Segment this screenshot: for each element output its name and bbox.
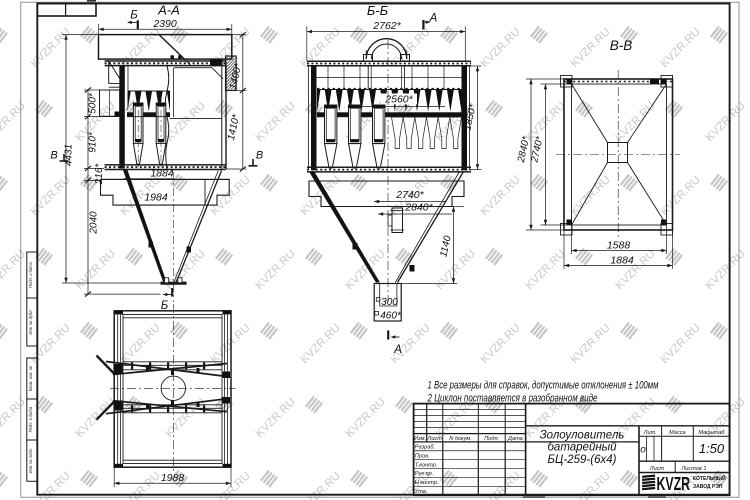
svg-text:Золоуловитель: Золоуловитель — [540, 430, 625, 442]
svg-text:Лист: Лист — [426, 436, 442, 442]
svg-text:Разраб.: Разраб. — [415, 445, 435, 451]
svg-text:300: 300 — [381, 297, 398, 308]
svg-text:1884: 1884 — [150, 168, 174, 180]
svg-text:БЦ-259-(6х4): БЦ-259-(6х4) — [548, 454, 617, 466]
svg-text:Рук пр.: Рук пр. — [415, 471, 433, 477]
svg-text:1 Все размеры для справок, до: 1 Все размеры для справок, допустимые от… — [428, 380, 659, 392]
svg-text:Инв. № подл.: Инв. № подл. — [28, 448, 33, 473]
svg-text:2040: 2040 — [89, 211, 100, 235]
svg-text:Взам. инв. №: Взам. инв. № — [28, 365, 33, 391]
svg-text:1588: 1588 — [607, 239, 631, 251]
svg-text:А: А — [429, 13, 438, 25]
svg-text:1:50: 1:50 — [699, 441, 725, 456]
svg-text:В: В — [50, 150, 57, 162]
svg-text:KVZR: KVZR — [657, 473, 691, 494]
svg-text:500*: 500* — [88, 92, 99, 114]
svg-text:2840*: 2840* — [404, 202, 433, 214]
svg-text:В: В — [256, 150, 263, 162]
svg-text:Дата: Дата — [507, 436, 523, 442]
svg-text:Т.контр.: Т.контр. — [415, 462, 438, 468]
svg-text:910*: 910* — [88, 131, 99, 153]
svg-text:2390: 2390 — [152, 18, 177, 30]
svg-text:N докум.: N докум. — [449, 436, 472, 442]
svg-text:2560*: 2560* — [384, 94, 413, 106]
svg-text:КОТЕЛЬНЫЙ: КОТЕЛЬНЫЙ — [693, 474, 726, 482]
svg-text:А: А — [393, 344, 402, 356]
svg-text:Масштаб: Масштаб — [698, 430, 725, 436]
svg-text:ЗАВОД РЭП: ЗАВОД РЭП — [693, 484, 723, 490]
svg-text:Утв.: Утв. — [414, 489, 428, 495]
svg-text:В-В: В-В — [610, 38, 633, 53]
svg-text:Подп. и дата: Подп. и дата — [28, 261, 33, 287]
svg-text:Подп. и дата: Подп. и дата — [28, 406, 33, 432]
svg-text:Б-Б: Б-Б — [367, 3, 389, 18]
svg-text:460*: 460* — [380, 311, 402, 322]
svg-text:4431: 4431 — [64, 144, 75, 166]
svg-text:о: о — [640, 445, 646, 456]
svg-text:2740*: 2740* — [395, 189, 424, 201]
svg-text:Лист: Лист — [649, 466, 665, 472]
svg-text:Н контр.: Н контр. — [415, 480, 439, 486]
svg-text:1988: 1988 — [161, 472, 185, 484]
svg-text:А-А: А-А — [157, 3, 180, 18]
svg-text:батарейный: батарейный — [547, 442, 617, 454]
svg-text:Лит.: Лит. — [643, 430, 657, 436]
svg-text:2762*: 2762* — [372, 20, 401, 32]
svg-text:Масса: Масса — [669, 430, 686, 436]
svg-text:1984: 1984 — [144, 192, 168, 204]
svg-text:1884: 1884 — [610, 254, 634, 266]
svg-text:Инв. № дубл.: Инв. № дубл. — [28, 309, 33, 334]
svg-text:216*: 216* — [94, 163, 105, 186]
svg-text:Пров.: Пров. — [415, 453, 430, 459]
svg-text:Листов 1: Листов 1 — [680, 466, 706, 472]
svg-text:Изм.: Изм. — [414, 436, 426, 442]
svg-text:Б: Б — [130, 10, 138, 22]
svg-text:Подп.: Подп. — [484, 436, 499, 442]
